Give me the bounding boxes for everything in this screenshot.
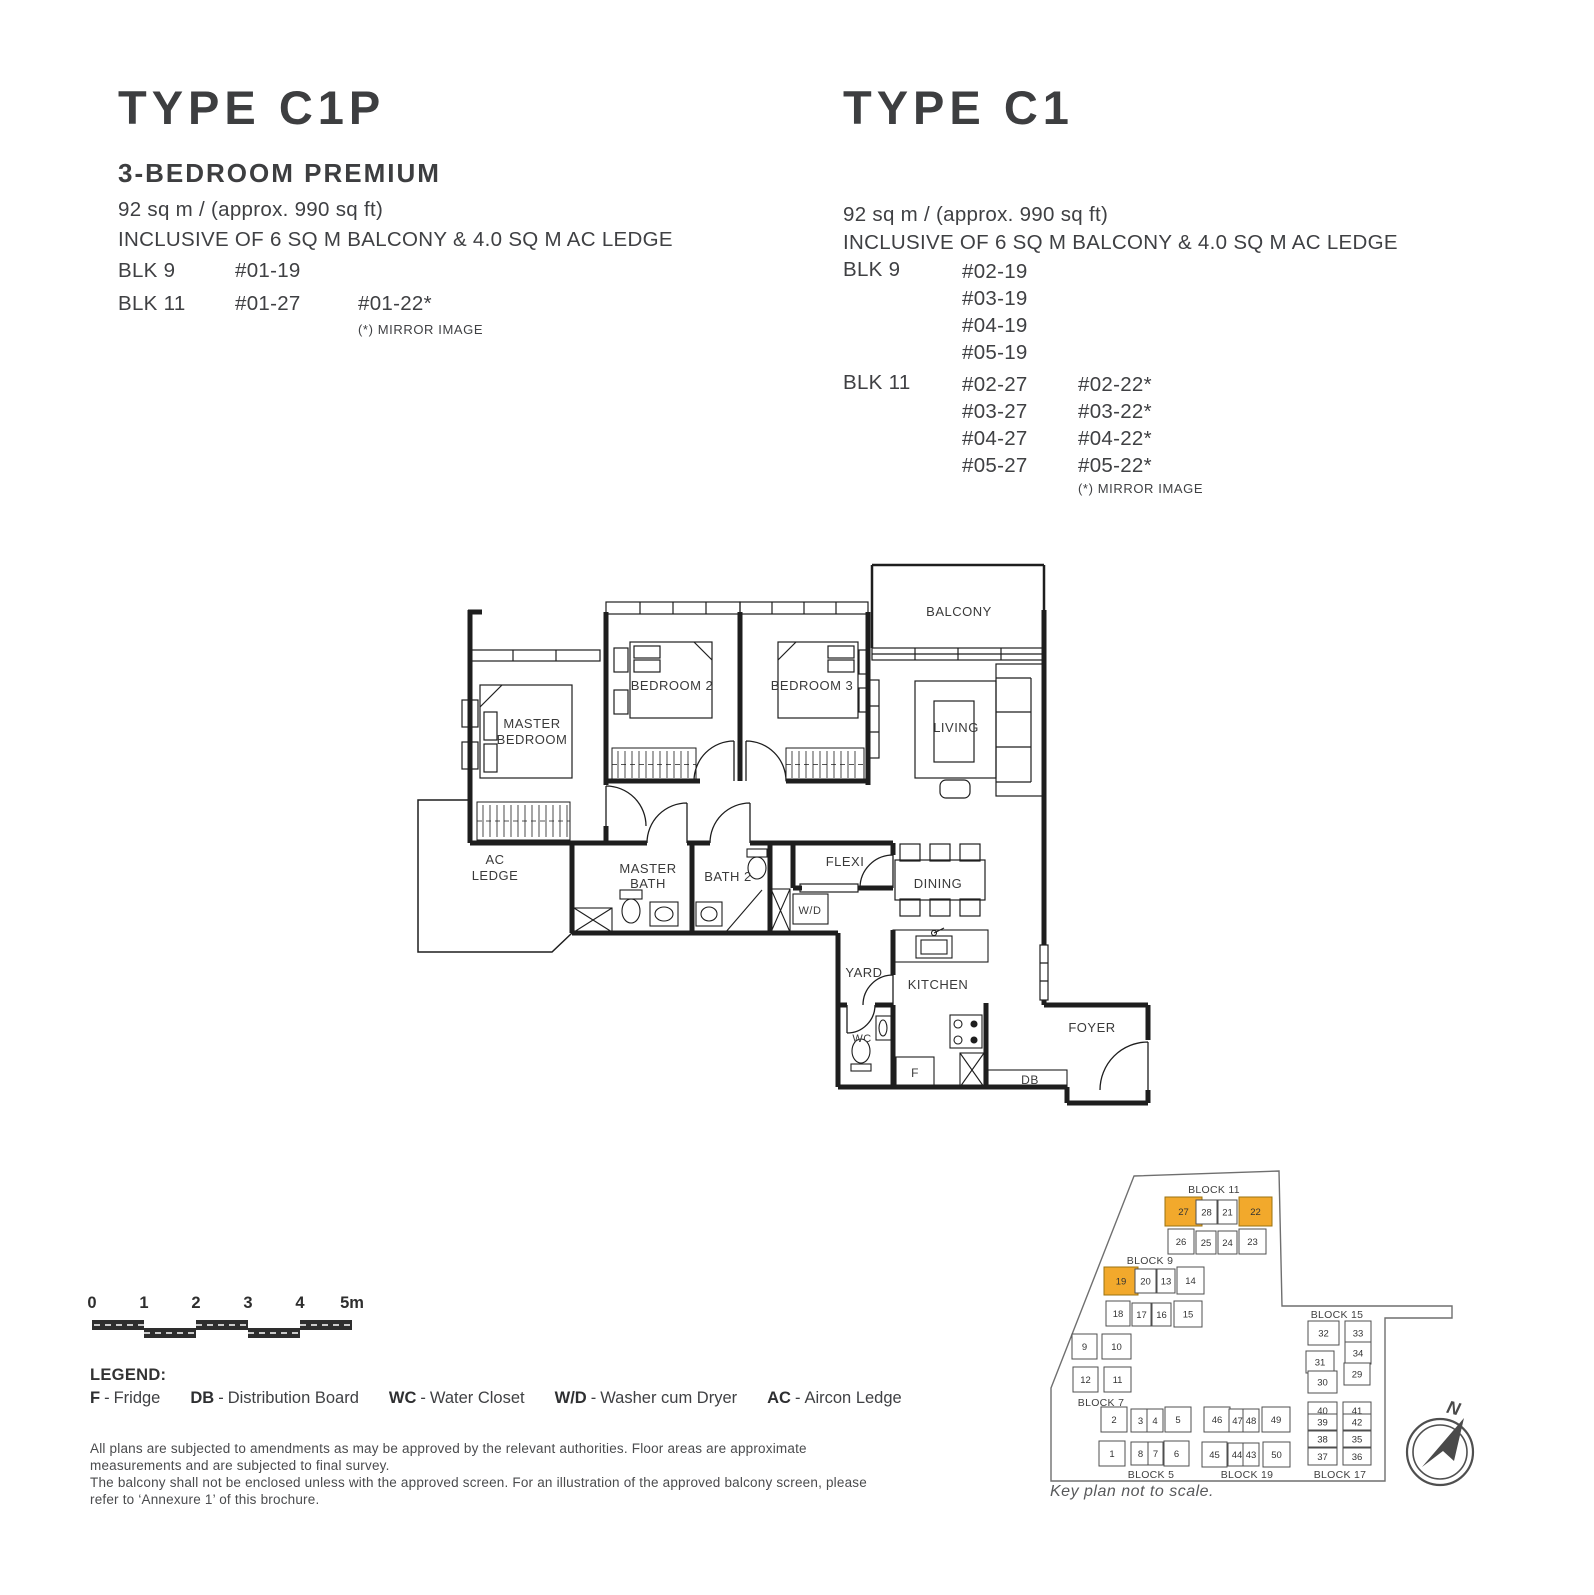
keyplan-block-label: BLOCK 5: [1128, 1469, 1174, 1481]
keyplan-block-label: BLOCK 17: [1314, 1469, 1367, 1481]
keyplan-unit-number: 16: [1156, 1310, 1167, 1321]
keyplan-unit-number: 14: [1185, 1276, 1196, 1287]
keyplan-unit-number: 1: [1109, 1449, 1114, 1460]
legend-title: LEGEND:: [90, 1366, 902, 1385]
label-yard: YARD: [845, 965, 882, 980]
keyplan-unit-number: 50: [1271, 1450, 1282, 1461]
keyplan-unit-number: 28: [1201, 1208, 1212, 1219]
wardrobe-bedroom2: [612, 748, 696, 781]
scale-tick-label: 3: [243, 1294, 252, 1312]
keyplan-unit-number: 25: [1201, 1238, 1212, 1249]
keyplan-block: 4647484945444350BLOCK 19: [1202, 1407, 1290, 1481]
keyplan: 2728212226252423BLOCK 111920131418171615…: [1051, 1171, 1473, 1485]
keyplan-unit-number: 30: [1317, 1378, 1328, 1389]
keyplan-unit-number: 31: [1315, 1358, 1326, 1369]
keyplan-block: 2728212226252423BLOCK 11: [1165, 1184, 1272, 1254]
keyplan-unit-number: 21: [1222, 1208, 1233, 1219]
keyplan-unit-number: 26: [1176, 1237, 1187, 1248]
keyplan-block-label: BLOCK 11: [1188, 1184, 1240, 1196]
keyplan-unit-number: 35: [1352, 1435, 1363, 1446]
keyplan-unit-number: 17: [1136, 1310, 1147, 1321]
keyplan-unit-number: 19: [1116, 1277, 1127, 1288]
keyplan-unit-number: 49: [1271, 1415, 1282, 1426]
keyplan-caption: Key plan not to scale.: [1050, 1483, 1214, 1501]
wardrobe-bedroom3: [786, 748, 864, 781]
label-flexi: FLEXI: [826, 854, 865, 869]
keyplan-unit-number: 33: [1353, 1329, 1364, 1340]
keyplan-unit-number: 23: [1247, 1237, 1258, 1248]
label-mbath-1: MASTER: [619, 861, 676, 876]
keyplan-unit-number: 36: [1352, 1452, 1363, 1463]
keyplan-unit-number: 46: [1212, 1415, 1223, 1426]
label-living: LIVING: [933, 720, 979, 735]
keyplan-unit-number: 7: [1153, 1449, 1158, 1460]
keyplan-unit-number: 2: [1111, 1415, 1116, 1426]
keyplan-block-label: BLOCK 9: [1127, 1255, 1173, 1267]
keyplan-unit-number: 48: [1246, 1416, 1257, 1427]
keyplan-unit-number: 13: [1161, 1277, 1172, 1288]
floorplan: BALCONY LIVING BEDROOM 2 BEDROOM 3 MASTE…: [418, 565, 1148, 1103]
label-kitchen: KITCHEN: [908, 977, 969, 992]
keyplan-unit-number: 24: [1222, 1238, 1233, 1249]
label-db: DB: [1021, 1073, 1039, 1087]
keyplan-unit-number: 10: [1111, 1342, 1122, 1353]
keyplan-unit-number: 20: [1140, 1277, 1151, 1288]
keyplan-unit-number: 8: [1138, 1449, 1143, 1460]
scale-tick-label: 1: [139, 1294, 148, 1312]
label-mbath-2: BATH: [630, 876, 666, 891]
keyplan-block: 23451876BLOCK 5: [1099, 1407, 1191, 1481]
north-compass: N: [1407, 1397, 1473, 1485]
keyplan-unit-number: 32: [1318, 1329, 1329, 1340]
legend-item-ac: AC-Aircon Ledge: [767, 1389, 902, 1408]
label-bedroom2: BEDROOM 2: [631, 678, 714, 693]
keyplan-block-label: BLOCK 15: [1311, 1309, 1364, 1321]
disclaimer-paragraph-1: All plans are subjected to amendments as…: [90, 1440, 890, 1474]
wardrobe-master: [477, 802, 570, 840]
label-foyer: FOYER: [1068, 1020, 1115, 1035]
floorplan-drawing: BALCONY LIVING BEDROOM 2 BEDROOM 3 MASTE…: [0, 0, 1594, 1595]
doors: [606, 741, 1148, 1090]
keyplan-unit-number: 9: [1082, 1342, 1087, 1353]
keyplan-block: 9101211BLOCK 7: [1072, 1334, 1131, 1409]
scale-tick-label: 0: [87, 1294, 96, 1312]
scale-bar: 012345m: [87, 1294, 364, 1338]
keyplan-unit-number: 42: [1352, 1418, 1363, 1429]
disclaimer: All plans are subjected to amendments as…: [90, 1440, 890, 1508]
label-ac-2: LEDGE: [472, 868, 519, 883]
keyplan-unit-number: 3: [1138, 1416, 1143, 1427]
scale-tick-label: 4: [295, 1294, 305, 1312]
keyplan-unit-number: 6: [1174, 1449, 1179, 1460]
label-ac-1: AC: [485, 852, 504, 867]
disclaimer-paragraph-2: The balcony shall not be enclosed unless…: [90, 1474, 890, 1508]
legend-item-fridge: F-Fridge: [90, 1389, 160, 1408]
north-letter: N: [1445, 1397, 1463, 1420]
keyplan-block: 1920131418171615BLOCK 9: [1104, 1255, 1204, 1327]
label-master-1: MASTER: [503, 716, 560, 731]
keyplan-block-label: BLOCK 19: [1221, 1469, 1274, 1481]
keyplan-unit-number: 5: [1175, 1415, 1180, 1426]
keyplan-unit-number: 43: [1246, 1450, 1257, 1461]
keyplan-unit-number: 18: [1113, 1309, 1124, 1320]
keyplan-unit-number: 45: [1209, 1450, 1220, 1461]
legend-item-db: DB-Distribution Board: [190, 1389, 359, 1408]
keyplan-unit-number: 27: [1178, 1207, 1189, 1218]
legend-item-wd: W/D-Washer cum Dryer: [555, 1389, 738, 1408]
kitchen-fittings: [893, 928, 1067, 1087]
scale-tick-label: 2: [191, 1294, 200, 1312]
label-bath2: BATH 2: [704, 869, 752, 884]
legend-item-wc: WC-Water Closet: [389, 1389, 525, 1408]
keyplan-unit-number: 29: [1352, 1370, 1363, 1381]
furniture-bedrooms: [462, 642, 868, 778]
keyplan-unit-number: 4: [1152, 1416, 1157, 1427]
label-fridge: F: [911, 1066, 919, 1080]
keyplan-unit-number: 47: [1232, 1416, 1243, 1427]
scale-tick-label: 5m: [340, 1294, 364, 1312]
brochure-page: { "colors": { "highlight_orange": "#F2A9…: [0, 0, 1594, 1595]
keyplan-unit-number: 39: [1317, 1418, 1328, 1429]
keyplan-unit-number: 37: [1317, 1452, 1328, 1463]
label-balcony: BALCONY: [926, 604, 992, 619]
keyplan-unit-number: 38: [1317, 1435, 1328, 1446]
keyplan-unit-number: 15: [1183, 1310, 1194, 1321]
keyplan-unit-number: 12: [1080, 1375, 1091, 1386]
keyplan-block: 4041394238353736BLOCK 17: [1308, 1402, 1371, 1481]
keyplan-block: 323331343029BLOCK 15: [1306, 1309, 1371, 1393]
label-wc: WC: [852, 1033, 871, 1045]
label-wd: W/D: [799, 905, 822, 917]
label-bedroom3: BEDROOM 3: [771, 678, 854, 693]
label-master-2: BEDROOM: [497, 732, 568, 747]
keyplan-unit-number: 22: [1250, 1207, 1261, 1218]
windows: [470, 602, 1048, 1000]
label-dining: DINING: [914, 876, 963, 891]
keyplan-unit-number: 11: [1113, 1375, 1123, 1386]
legend: LEGEND: F-Fridge DB-Distribution Board W…: [90, 1366, 902, 1408]
keyplan-unit-number: 44: [1232, 1450, 1243, 1461]
keyplan-unit-number: 34: [1353, 1349, 1364, 1360]
